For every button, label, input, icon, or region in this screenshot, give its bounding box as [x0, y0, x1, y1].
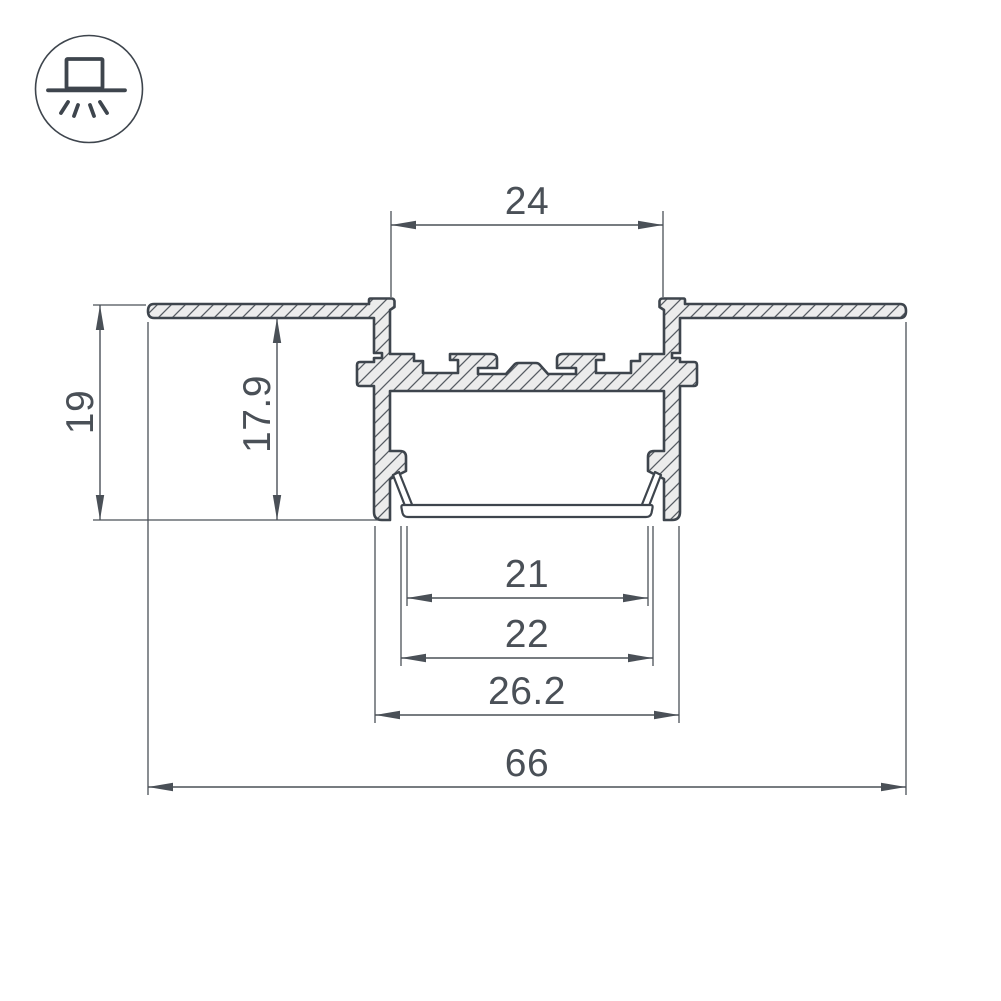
dimension-arrow	[623, 594, 648, 602]
dimension-arrow	[638, 221, 663, 229]
dimension-arrow	[881, 783, 906, 791]
dimension-label: 66	[505, 742, 549, 785]
dimension-label: 21	[505, 553, 549, 596]
dimension-label: 22	[505, 613, 549, 656]
dimension-arrow	[401, 654, 426, 662]
dimension-arrow	[148, 783, 173, 791]
profile-cross-section-drawing: 24 19 17.9 21	[0, 0, 1001, 1001]
dimension-label: 17.9	[236, 375, 279, 453]
dimension-arrow	[96, 495, 104, 520]
dim-top-opening-width: 24	[391, 180, 663, 297]
dimension-arrow	[375, 711, 400, 719]
dimension-arrow	[273, 318, 281, 343]
dimension-arrow	[628, 654, 653, 662]
dimension-arrow	[273, 495, 281, 520]
diffuser-plate	[401, 505, 652, 517]
dimension-arrow	[391, 221, 416, 229]
dimension-arrow	[407, 594, 432, 602]
dimension-arrow	[96, 305, 104, 330]
recessed-mount-icon	[36, 36, 143, 143]
diffuser	[393, 472, 661, 517]
dim-overall-height: 19	[59, 305, 378, 520]
dimension-arrow	[654, 711, 679, 719]
dim-diffuser-width: 22	[401, 526, 653, 666]
dimension-label: 19	[59, 390, 102, 434]
dimension-label: 24	[505, 180, 549, 223]
lamp-box	[67, 59, 103, 89]
dimension-label: 26.2	[488, 670, 566, 713]
dimension-annotations: 24 19 17.9 21	[59, 180, 906, 795]
light-rays	[61, 102, 107, 116]
drawing-canvas: 24 19 17.9 21	[0, 0, 1001, 1001]
dim-bottom-opening-width: 21	[407, 526, 648, 606]
dim-inner-height: 17.9	[236, 318, 281, 520]
